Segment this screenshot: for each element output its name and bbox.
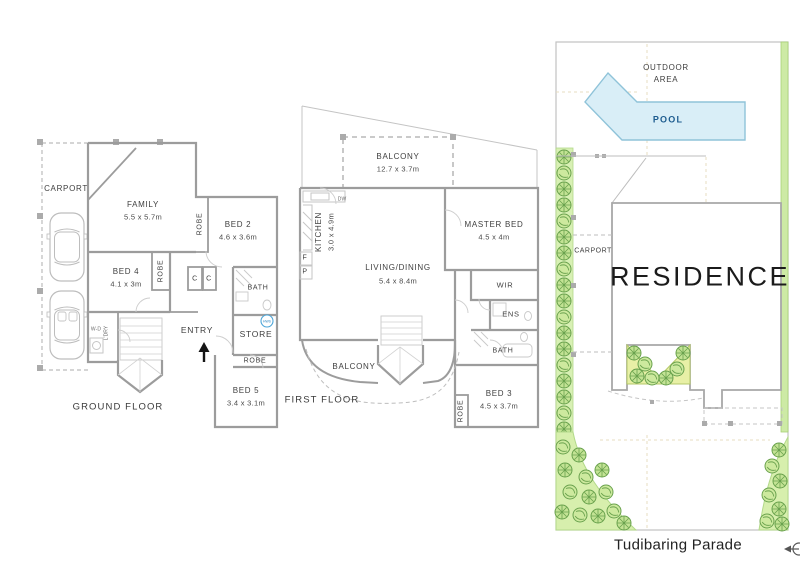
- kitchen-label: KITCHEN: [315, 212, 323, 252]
- upper-balcony-outline: [343, 137, 453, 188]
- closet-label: C: [192, 276, 198, 283]
- kitchen-dims: 3.0 x 4.9m: [327, 213, 335, 251]
- outdoor-area-label-line2: AREA: [654, 76, 679, 84]
- upper-balcony-dims: 12.7 x 3.7m: [377, 165, 420, 173]
- site-carport-label: CARPORT: [574, 248, 612, 255]
- entry-arrow-icon: [199, 342, 210, 362]
- first-floor-title: FIRST FLOOR: [285, 395, 360, 405]
- living-dining-dims: 5.4 x 8.4m: [379, 277, 417, 285]
- lot-top-line: [556, 156, 706, 203]
- compass-icon: [784, 543, 800, 555]
- car-icon: [47, 291, 87, 359]
- hws-text: HWS: [263, 320, 272, 324]
- ens-label: ENS: [502, 310, 520, 318]
- site-fence-posts: [571, 152, 606, 357]
- bed5-label: BED 5: [233, 387, 260, 395]
- floorplan-page: HWS: [0, 0, 800, 563]
- bed5-robe-label: ROBE: [244, 358, 267, 365]
- dw-label: DW: [338, 198, 347, 203]
- courtyard-garden: [627, 345, 690, 385]
- first-bath-label: BATH: [493, 348, 514, 355]
- ground-floor-title: GROUND FLOOR: [73, 402, 164, 412]
- ground-carport-label: CARPORT: [44, 185, 88, 193]
- ground-stairs: [118, 318, 162, 392]
- right-landscape-strip: [781, 42, 788, 432]
- laundry-fixtures: [90, 338, 103, 353]
- family-label: FAMILY: [127, 201, 159, 209]
- bed3-robe-label: ROBE: [458, 400, 465, 423]
- street-name-label: Tudibaring Parade: [614, 538, 742, 553]
- bed3-dims: 4.5 x 3.7m: [480, 402, 518, 410]
- living-dining-label: LIVING/DINING: [365, 264, 431, 272]
- bottom-right-garden: [759, 437, 789, 531]
- master-bed-dims: 4.5 x 4m: [478, 233, 509, 241]
- bed2-robe-label: ROBE: [197, 213, 204, 236]
- store-label: STORE: [240, 330, 273, 339]
- lower-balcony-label: BALCONY: [332, 363, 375, 371]
- ground-door-arcs: [118, 251, 263, 368]
- master-bed-label: MASTER BED: [464, 221, 523, 229]
- driveway-arc: [608, 391, 782, 424]
- bed4-robe-label: ROBE: [158, 260, 165, 283]
- first-stairs: [378, 316, 423, 384]
- closet-label: C: [206, 276, 212, 283]
- entry-label: ENTRY: [181, 326, 213, 335]
- family-dims: 5.5 x 5.7m: [124, 213, 162, 221]
- ground-bath-label: BATH: [248, 285, 269, 292]
- ldry-label: L'DRY: [105, 326, 110, 341]
- pool-label: POOL: [653, 116, 683, 125]
- ground-floor-linework: HWS: [37, 139, 277, 427]
- car-icon: [47, 213, 87, 281]
- wir-label: WIR: [497, 281, 514, 289]
- bed5-dims: 3.4 x 3.1m: [227, 399, 265, 407]
- bed2-dims: 4.6 x 3.6m: [219, 233, 257, 241]
- bed2-label: BED 2: [225, 221, 252, 229]
- bottom-left-garden: [555, 432, 636, 530]
- outdoor-area-label-line1: OUTDOOR: [643, 64, 689, 72]
- pantry-label: P: [302, 269, 307, 276]
- bed4-dims: 4.1 x 3m: [110, 280, 141, 288]
- wd-label: W-D: [91, 328, 101, 333]
- residence-label: RESIDENCE: [610, 264, 790, 291]
- upper-balcony-label: BALCONY: [376, 153, 419, 161]
- bed4-label: BED 4: [113, 268, 140, 276]
- hws-icon: HWS: [261, 315, 273, 327]
- fridge-label: F: [303, 255, 308, 262]
- bed3-label: BED 3: [486, 390, 513, 398]
